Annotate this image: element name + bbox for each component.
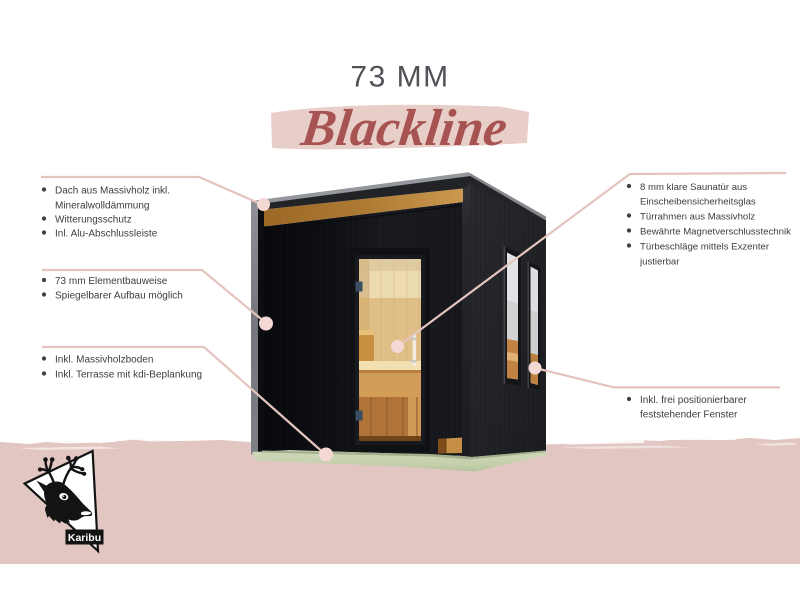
svg-text:Karibu: Karibu [68, 532, 101, 544]
svg-text:Inl. Alu-Abschlussleiste: Inl. Alu-Abschlussleiste [55, 229, 158, 240]
svg-text:Türrahmen aus Massivholz: Türrahmen aus Massivholz [640, 212, 755, 223]
svg-text:Witterungsschutz: Witterungsschutz [55, 215, 132, 226]
svg-text:Inkl. frei positionierbarer: Inkl. frei positionierbarer [640, 395, 747, 406]
svg-text:Inkl. Terrasse mit kdi-Beplank: Inkl. Terrasse mit kdi-Beplankung [55, 370, 202, 381]
svg-text:Türbeschläge mittels Exzenter: Türbeschläge mittels Exzenter [640, 242, 770, 253]
svg-text:Dach aus Massivholz inkl.: Dach aus Massivholz inkl. [55, 186, 170, 197]
svg-text:Inkl. Massivholzboden: Inkl. Massivholzboden [55, 355, 153, 366]
svg-text:Einscheibensicherheitsglas: Einscheibensicherheitsglas [640, 197, 756, 208]
svg-text:Bewährte Magnetverschlusstechn: Bewährte Magnetverschlusstechnik [640, 227, 791, 238]
svg-text:8 mm klare Saunatür aus: 8 mm klare Saunatür aus [640, 182, 747, 193]
svg-text:Spiegelbarer Aufbau möglich: Spiegelbarer Aufbau möglich [55, 291, 183, 302]
svg-text:Mineralwolldämmung: Mineralwolldämmung [55, 201, 149, 212]
svg-text:Blackline: Blackline [297, 99, 510, 157]
svg-text:73 mm Elementbauweise: 73 mm Elementbauweise [55, 276, 168, 287]
svg-text:73 MM: 73 MM [350, 61, 449, 94]
svg-text:feststehender Fenster: feststehender Fenster [640, 410, 738, 421]
svg-text:justierbar: justierbar [639, 257, 680, 268]
